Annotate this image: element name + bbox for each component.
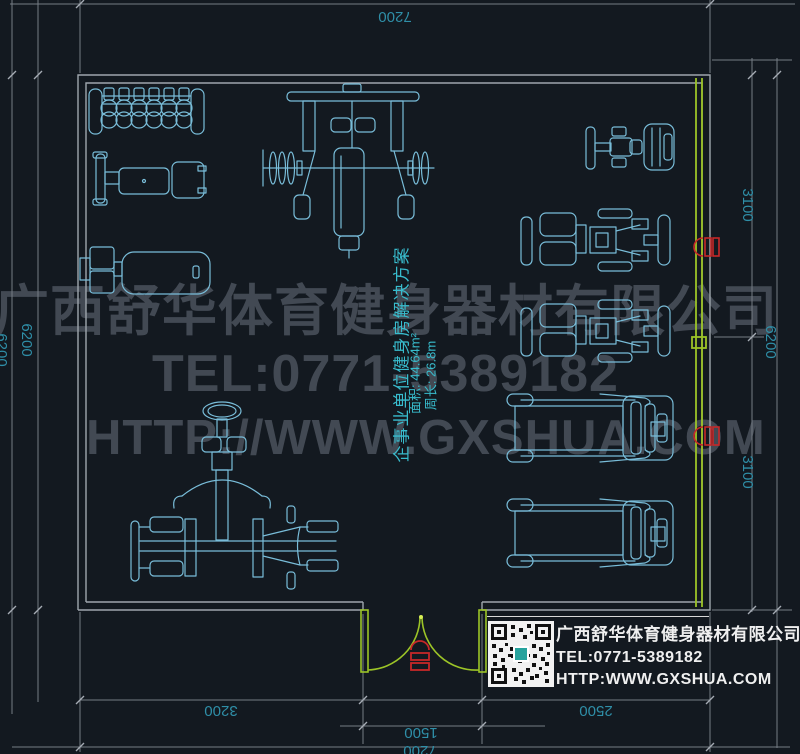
qr-code [488, 621, 554, 687]
cad-canvas: 广西舒华体育健身器材有限公司 TEL:0771-5389182 HTTP://W… [0, 0, 800, 754]
dumbbell-rack [89, 88, 204, 134]
company-info-card: 广西舒华体育健身器材有限公司 TEL:0771-5389182 HTTP:WWW… [485, 614, 800, 714]
window-marker-upper [694, 238, 719, 256]
adjustable-bench [93, 152, 206, 205]
treadmill-2 [507, 499, 673, 567]
dim-left-outer: 6200 [0, 333, 10, 366]
card-tel: TEL:0771-5389182 [556, 649, 800, 667]
dumbbells [101, 88, 192, 128]
card-divider [487, 616, 709, 617]
plan-perimeter-label: 周长: 26.8m [421, 304, 440, 448]
card-company-name: 广西舒华体育健身器材有限公司 [556, 620, 800, 645]
equipment-layer [80, 84, 674, 589]
door-marker [411, 641, 429, 670]
recumbent-machine-1 [521, 209, 670, 271]
window-marker-lower [694, 427, 719, 445]
dim-right-upper: 3100 [739, 188, 756, 221]
card-website: HTTP:WWW.GXSHUA.COM [556, 671, 800, 689]
qr-center-logo [515, 648, 527, 660]
flat-bench [80, 247, 210, 294]
multi-station-trainer [131, 402, 338, 589]
window-strip [692, 78, 706, 607]
treadmill-1 [507, 394, 673, 462]
dim-door-width: 1500 [404, 724, 437, 741]
recumbent-machine-2 [521, 300, 670, 362]
exercise-bike [586, 124, 674, 170]
multi-gym-station [263, 84, 434, 258]
dim-right-total: 6200 [762, 325, 779, 358]
dim-top-width: 7200 [378, 8, 411, 25]
dim-left-height: 6200 [18, 323, 35, 356]
dim-bottom-left: 3200 [204, 702, 237, 719]
dim-bottom-total: 7200 [403, 742, 436, 754]
dim-right-lower: 3100 [739, 455, 756, 488]
